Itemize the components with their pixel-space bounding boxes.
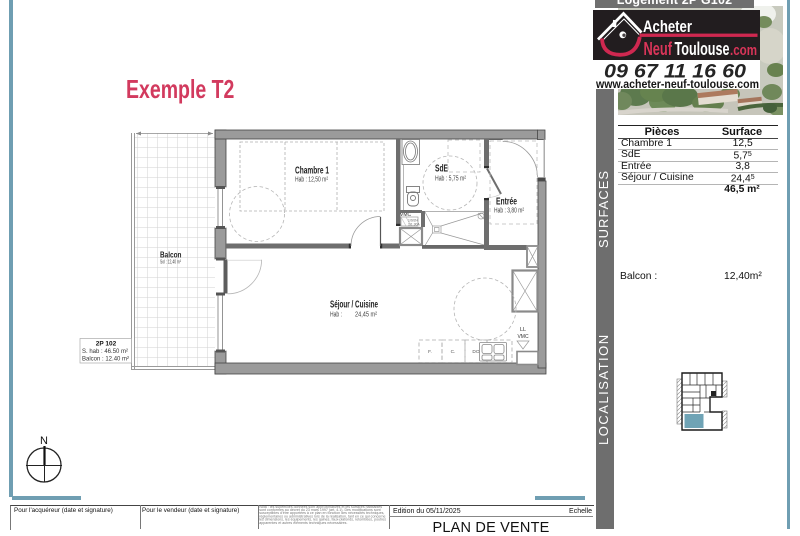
svg-text:Sol : 12,40 m²: Sol : 12,40 m² xyxy=(160,260,181,266)
svg-text:www.acheter-neuf-toulouse.com: www.acheter-neuf-toulouse.com xyxy=(595,77,759,89)
svg-text:Chambre 1: Chambre 1 xyxy=(295,166,329,177)
svg-text:C.: C. xyxy=(451,349,456,355)
svg-text:2P 102: 2P 102 xyxy=(96,341,117,348)
svg-text:Hab :: Hab : xyxy=(330,312,342,319)
svg-text:Balcon: Balcon xyxy=(160,251,182,260)
svg-text:24,45 m²: 24,45 m² xyxy=(355,312,378,319)
svg-text:Acheter: Acheter xyxy=(643,17,692,36)
svg-text:Toulouse: Toulouse xyxy=(675,39,730,59)
svg-text:S. hab : 46.50 m²: S. hab : 46.50 m² xyxy=(82,349,128,355)
svg-text:Entrée: Entrée xyxy=(496,197,517,208)
svg-text:DO: DO xyxy=(472,349,479,355)
svg-text:LL: LL xyxy=(520,327,526,333)
svg-text:VMC: VMC xyxy=(517,334,529,340)
svg-text:Séjour / Cuisine: Séjour / Cuisine xyxy=(330,300,378,311)
svg-text:Neuf: Neuf xyxy=(644,39,673,59)
svg-text:N: N xyxy=(40,435,48,447)
svg-text:Hab : 12,50 m²: Hab : 12,50 m² xyxy=(295,177,328,184)
svg-text:SdE: SdE xyxy=(435,164,448,175)
svg-text:1/1.30A: 1/1.30A xyxy=(408,223,420,227)
svg-text:F.: F. xyxy=(428,349,432,355)
svg-text:Hab : 5,75 m²: Hab : 5,75 m² xyxy=(435,176,466,183)
svg-text:Hab : 3,80 m²: Hab : 3,80 m² xyxy=(494,208,524,215)
svg-text:Balcon : 12.40 m²: Balcon : 12.40 m² xyxy=(82,357,129,363)
svg-text:.com: .com xyxy=(730,43,757,59)
